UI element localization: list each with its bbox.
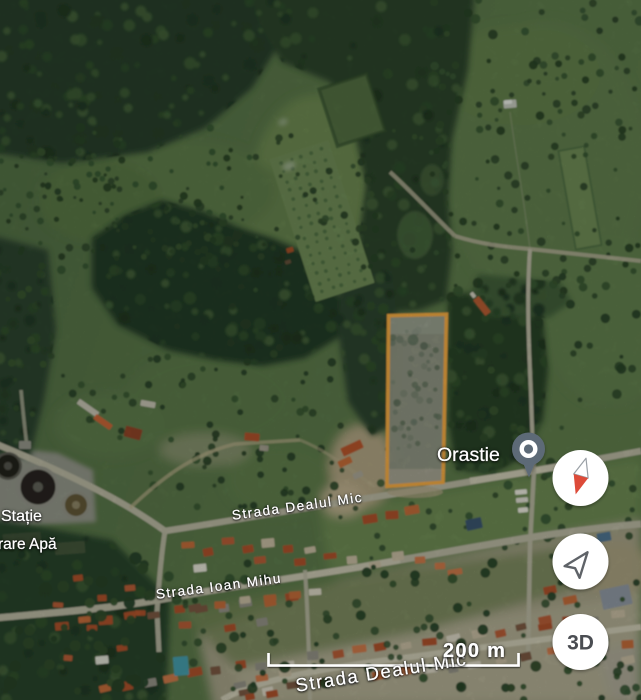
svg-text:3D: 3D: [567, 632, 594, 655]
